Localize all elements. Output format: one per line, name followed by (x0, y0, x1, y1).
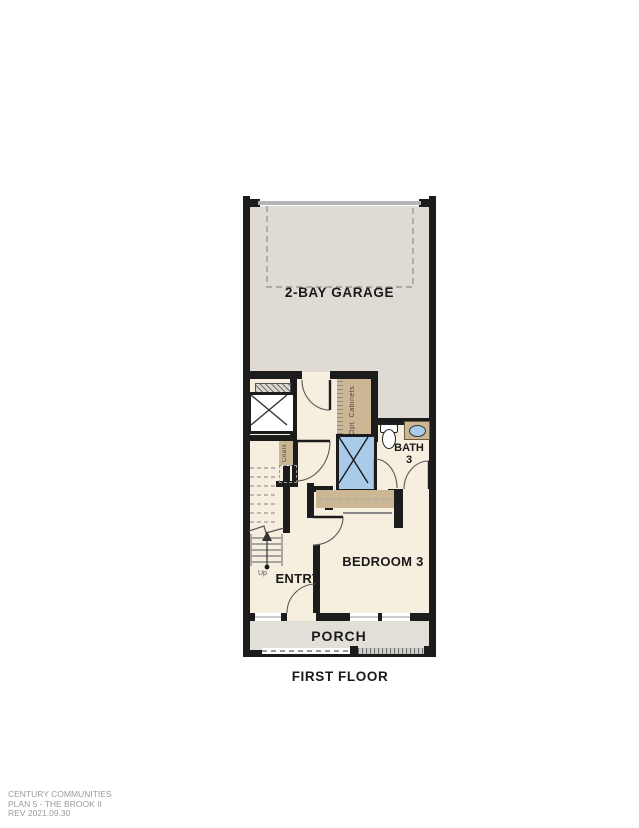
bath-label-line1: BATH (387, 443, 431, 455)
first-floor-caption: FIRST FLOOR (270, 669, 410, 684)
bedroom-label: BEDROOM 3 (333, 554, 433, 569)
entry-label: ENTRY (268, 571, 328, 586)
up-label: Up (258, 570, 267, 577)
garage-label: 2-BAY GARAGE (250, 285, 429, 300)
floor-plan-page: Opt. Cabinets Coats (0, 0, 639, 828)
bath-label-line2: 3 (387, 455, 431, 467)
porch-label: PORCH (299, 628, 379, 644)
plan-footer: CENTURY COMMUNITIES PLAN 5 - THE BROOK I… (8, 790, 112, 819)
bath-label: BATH 3 (387, 443, 431, 466)
footer-revision: REV 2021.09.30 (8, 809, 112, 819)
plan-linework (0, 0, 639, 828)
